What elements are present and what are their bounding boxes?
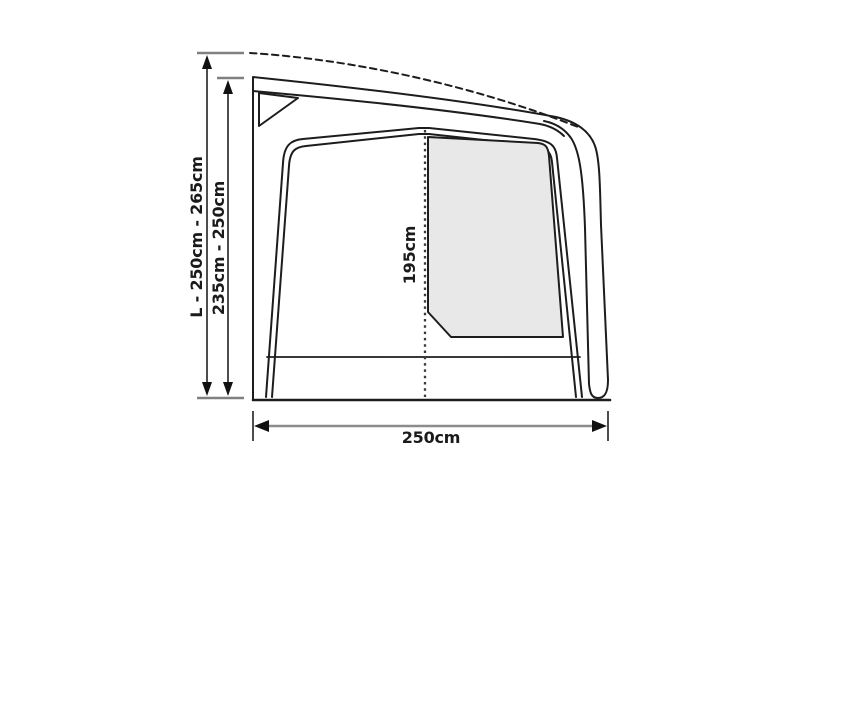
- awning-dimension-diagram: L - 250cm - 265cm 235cm - 250cm 195cm 25…: [0, 0, 850, 728]
- corner-gusset-triangle: [259, 93, 298, 126]
- arrow-down-icon: [202, 382, 212, 396]
- awning-drawing: [250, 53, 610, 400]
- outer-height-label: L - 250cm - 265cm: [186, 107, 208, 367]
- arrow-up-icon: [223, 80, 233, 94]
- inner-height-label: 235cm - 250cm: [208, 118, 230, 378]
- arrow-down-icon: [223, 382, 233, 396]
- arrow-right-icon: [592, 420, 607, 432]
- door-height-label: 195cm: [399, 125, 421, 385]
- max-height-dashed-curve: [250, 53, 578, 127]
- side-window: [428, 137, 563, 337]
- arrow-left-icon: [254, 420, 269, 432]
- diagram-canvas: [0, 0, 850, 728]
- arrow-up-icon: [202, 55, 212, 69]
- depth-label: 250cm: [331, 427, 531, 449]
